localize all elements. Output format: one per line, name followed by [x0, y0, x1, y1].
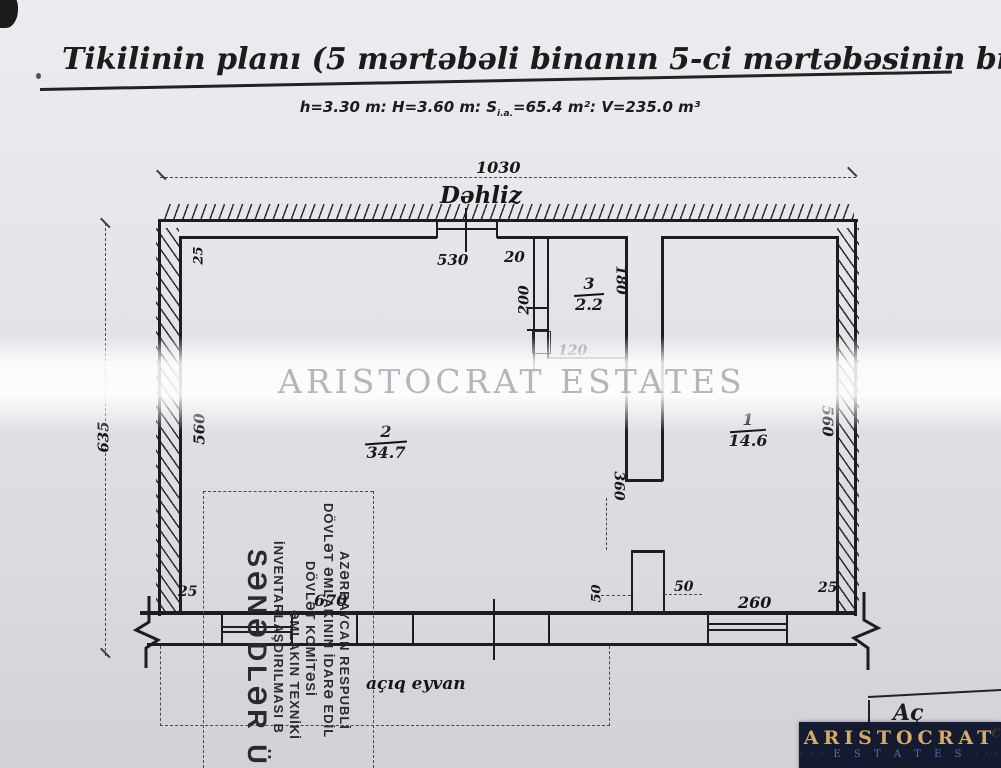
window-line [707, 629, 787, 631]
wall-top-inner-right [661, 236, 838, 239]
parapet-divider [221, 613, 223, 644]
room-number: 3 [568, 276, 610, 293]
dim-label-530: 530 [437, 251, 468, 269]
dim-label-50-vertical: 50 [590, 584, 605, 602]
room-area: 2.2 [568, 297, 610, 314]
stamp-line-5: İNVENTARLAŞDIRILMASI B [271, 541, 286, 734]
stamp-line-4: ƏMLAKIN TEXNİKİ [287, 610, 302, 740]
dim-line-overall-width [160, 177, 856, 178]
params-post: =65.4 m²: V=235.0 m³ [513, 98, 700, 116]
aristocrat-estates-logo: ARISTOCRAT · · · E S T A T E S · · · [799, 722, 1001, 768]
dim-arrow [156, 170, 166, 180]
window-line [707, 623, 787, 625]
balcony-label: açıq eyvan [366, 674, 466, 694]
dim-label-20: 20 [504, 248, 525, 266]
dim-label-180: 180 [613, 265, 629, 294]
stamp-line-big: SƏNƏDLƏR ÜÇ [241, 549, 272, 768]
logo-subtitle: · · · E S T A T E S · · · [799, 749, 1001, 760]
logo-dots-left: · · · [799, 749, 825, 760]
room-area: 34.7 [362, 445, 410, 462]
watermark-text: ARISTOCRAT ESTATES [278, 362, 746, 401]
extension-line [601, 595, 631, 596]
dim-label-360: 360 [611, 471, 627, 500]
plan-parameters: h=3.30 m: H=3.60 m: Si.a.=65.4 m²: V=235… [250, 98, 750, 119]
scanned-floor-plan-page: Tikilinin planı (5 mərtəbəli binanın 5-c… [0, 0, 1001, 768]
dim-label-1030: 1030 [476, 158, 521, 177]
stamp-frame-right [373, 491, 374, 768]
wall-break-icon [840, 592, 886, 670]
scan-corner-mark [0, 0, 18, 28]
scan-speck [36, 73, 41, 79]
balcony-outline-bottom [160, 725, 610, 726]
room-area: 14.6 [726, 433, 770, 450]
stamp-line-2: DÖVLƏT ƏMLAKININ İDARƏ EDİL [321, 503, 336, 738]
pier-top [631, 550, 665, 553]
room3-label: 3 2.2 [568, 276, 610, 314]
params-pre: h=3.30 m: H=3.60 m: S [300, 98, 497, 116]
stamp-frame-top [203, 491, 373, 492]
stamp-line-1: AZƏRBAYCAN RESPUBLİ [337, 551, 352, 730]
dim-label-25-bottom-left: 25 [178, 584, 197, 600]
dim-label-260: 260 [738, 593, 771, 612]
door-axis-tick [465, 208, 467, 252]
dim-label-50-horizontal: 50 [674, 579, 693, 595]
parapet-divider [548, 613, 550, 644]
axis-tick-bottom [493, 599, 495, 660]
corridor-label: Dəhliz [440, 182, 522, 209]
dim-arrow [847, 167, 857, 177]
stamp-line-3: DÖVLƏT KOMİTƏSİ [303, 561, 318, 697]
balcony-outline-left [160, 646, 161, 726]
dim-label-25-top-left: 25 [192, 246, 207, 264]
door-sill [437, 228, 497, 230]
parapet-divider [412, 613, 414, 644]
logo-name: ARISTOCRAT [799, 727, 1001, 749]
dim-label-200: 200 [517, 285, 533, 314]
fragment-text-edge: c [991, 722, 1001, 741]
wall-top-outer [158, 219, 858, 222]
params-sub: i.a. [497, 109, 513, 119]
page-title: Tikilinin planı (5 mərtəbəli binanın 5-c… [62, 42, 962, 77]
extension-line [606, 498, 607, 550]
fragment-line [868, 689, 1001, 698]
logo-dots-right: · · · [975, 749, 1001, 760]
logo-sub-text: E S T A T E S [834, 749, 967, 760]
wall-break-icon [128, 596, 170, 668]
stamp-frame-left [203, 491, 204, 768]
pier-right [663, 551, 665, 613]
parapet-divider [356, 613, 358, 644]
mid-partition-cap [625, 479, 663, 482]
balcony-outline-right [609, 646, 610, 726]
wall-top-inner-mid [497, 236, 627, 239]
dim-label-25-bottom-right: 25 [818, 580, 837, 596]
wall-top-inner-left [180, 236, 437, 239]
pier-left [631, 551, 633, 613]
